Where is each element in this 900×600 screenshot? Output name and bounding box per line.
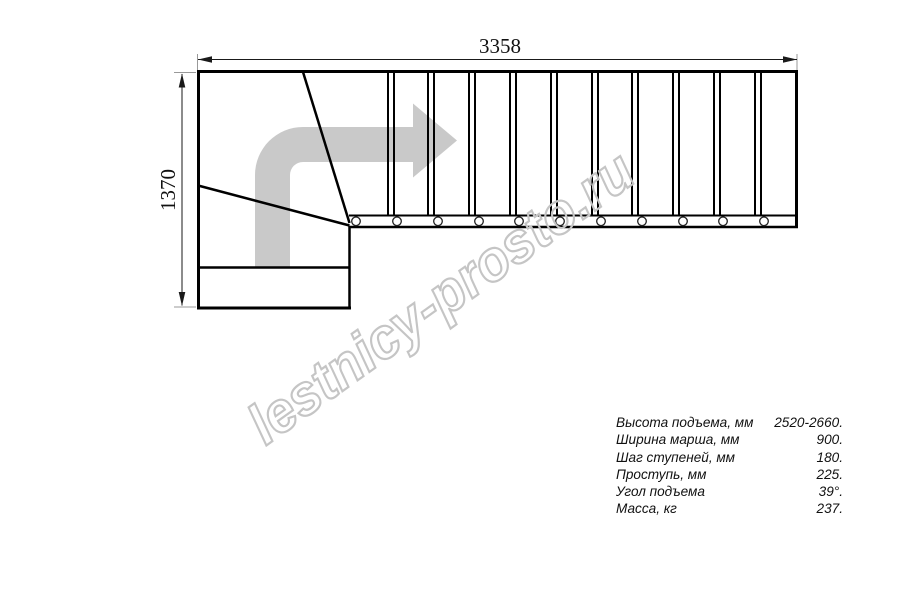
mount-circle: [679, 217, 688, 226]
spec-label: Высота подъема, мм: [616, 414, 753, 431]
mount-circle: [352, 217, 361, 226]
mount-circle: [638, 217, 647, 226]
mount-circle: [393, 217, 402, 226]
mount-circle: [475, 217, 484, 226]
dim-arrowhead-right-icon: [783, 56, 797, 63]
spec-row: Масса, кг 237.: [616, 500, 843, 517]
spec-label: Угол подъема: [616, 483, 705, 500]
spec-row: Шаг ступеней, мм 180.: [616, 449, 843, 466]
spec-value: 2520-2660.: [774, 414, 843, 431]
specs-table: Высота подъема, мм 2520-2660. Ширина мар…: [616, 414, 843, 518]
spec-label: Проступь, мм: [616, 466, 706, 483]
dimension-height: 1370: [156, 73, 196, 308]
spec-label: Масса, кг: [616, 500, 677, 517]
dim-arrowhead-top-icon: [179, 74, 186, 88]
spec-value: 237.: [817, 500, 843, 517]
watermark-text: lestnicy-prosto.ru: [236, 138, 646, 456]
dim-arrowhead-bottom-icon: [179, 292, 186, 306]
stair-drawing-page: 3358 1370 lestnicy-prosto.ru Высота подъ…: [0, 0, 900, 600]
direction-arrow: [255, 104, 457, 268]
mount-circle: [434, 217, 443, 226]
spec-label: Шаг ступеней, мм: [616, 449, 735, 466]
mount-circle: [760, 217, 769, 226]
spec-value: 180.: [817, 449, 843, 466]
spec-value: 39°.: [819, 483, 843, 500]
spec-label: Ширина марша, мм: [616, 431, 740, 448]
spec-row: Высота подъема, мм 2520-2660.: [616, 414, 843, 431]
spec-value: 900.: [817, 431, 843, 448]
dimension-width-label: 3358: [479, 34, 521, 58]
spec-row: Проступь, мм 225.: [616, 466, 843, 483]
spec-row: Ширина марша, мм 900.: [616, 431, 843, 448]
spec-row: Угол подъема 39°.: [616, 483, 843, 500]
mount-circle: [719, 217, 728, 226]
dimension-width: 3358: [198, 34, 798, 70]
spec-value: 225.: [817, 466, 843, 483]
dim-arrowhead-left-icon: [198, 56, 212, 63]
dimension-height-label: 1370: [156, 169, 180, 211]
